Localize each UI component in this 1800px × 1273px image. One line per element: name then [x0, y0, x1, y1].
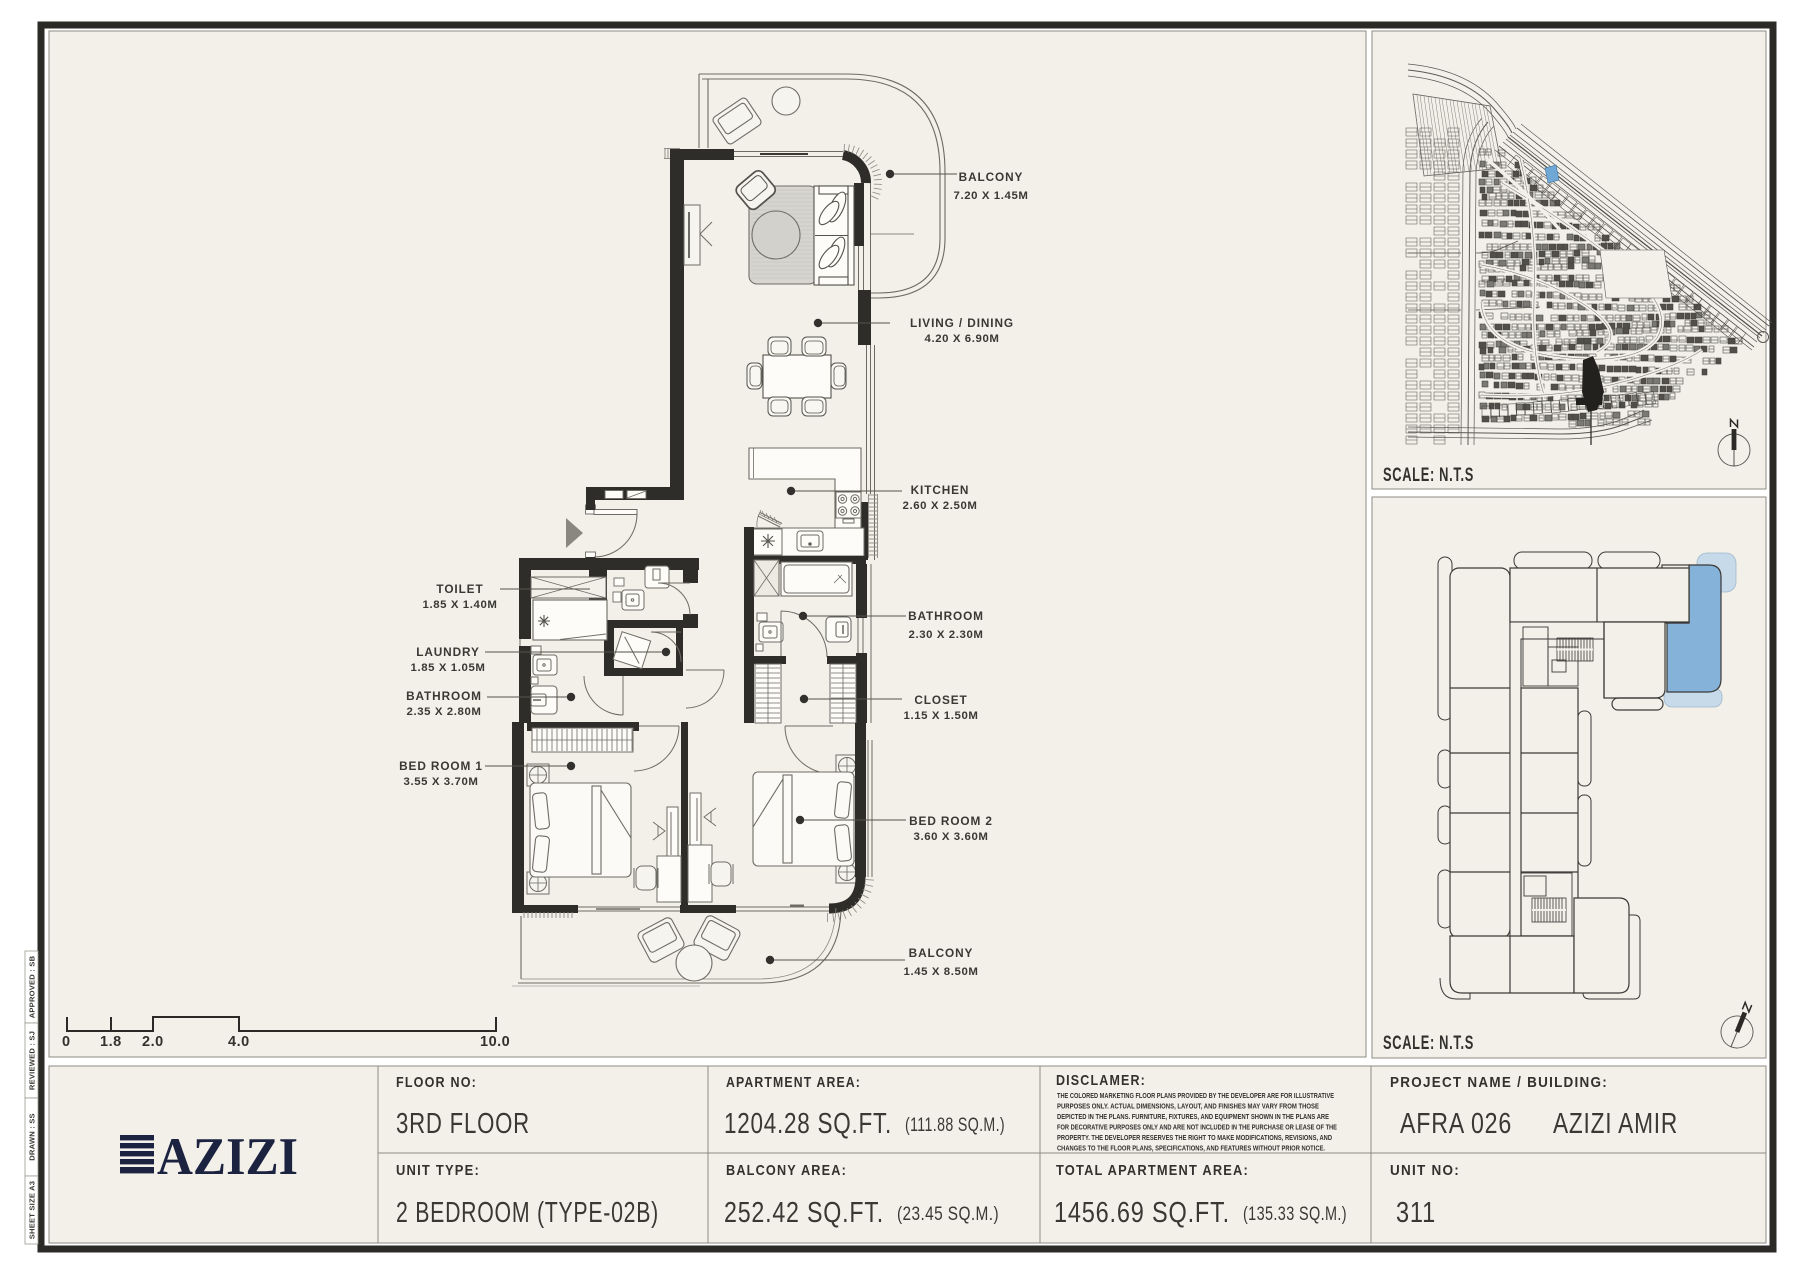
svg-text:SHEET SIZE A3: SHEET SIZE A3: [28, 1181, 37, 1239]
svg-text:(23.45 SQ.M.): (23.45 SQ.M.): [897, 1204, 999, 1225]
svg-text:CHANGES TO THE FLOOR PLANS, SP: CHANGES TO THE FLOOR PLANS, SPECIFICATIO…: [1057, 1144, 1325, 1153]
svg-text:(111.88 SQ.M.): (111.88 SQ.M.): [905, 1115, 1005, 1136]
svg-text:(135.33 SQ.M.): (135.33 SQ.M.): [1243, 1204, 1347, 1225]
svg-text:10.0: 10.0: [480, 1034, 510, 1050]
svg-text:AZIZI AMIR: AZIZI AMIR: [1553, 1108, 1678, 1140]
svg-text:1.15 X 1.50M: 1.15 X 1.50M: [904, 710, 979, 722]
svg-text:4.20 X 6.90M: 4.20 X 6.90M: [925, 333, 1000, 345]
svg-text:1.85 X 1.40M: 1.85 X 1.40M: [423, 599, 498, 611]
svg-text:TOTAL APARTMENT AREA:: TOTAL APARTMENT AREA:: [1056, 1162, 1249, 1179]
svg-text:DISCLAMER:: DISCLAMER:: [1056, 1072, 1146, 1089]
svg-text:2.30 X 2.30M: 2.30 X 2.30M: [909, 629, 984, 641]
svg-text:BATHROOM: BATHROOM: [908, 609, 984, 623]
svg-text:BATHROOM: BATHROOM: [406, 689, 482, 703]
svg-text:FOR DECORATIVE PURPOSES ONLY A: FOR DECORATIVE PURPOSES ONLY AND ARE NOT…: [1057, 1123, 1337, 1132]
svg-text:2.0: 2.0: [142, 1034, 164, 1050]
svg-text:CLOSET: CLOSET: [914, 693, 967, 707]
svg-text:THE COLORED MARKETING FLOOR PL: THE COLORED MARKETING FLOOR PLANS PROVID…: [1057, 1091, 1334, 1100]
svg-text:3RD FLOOR: 3RD FLOOR: [396, 1108, 530, 1140]
svg-text:AFRA 026: AFRA 026: [1400, 1108, 1512, 1140]
svg-text:UNIT NO:: UNIT NO:: [1390, 1162, 1460, 1179]
svg-text:FLOOR NO:: FLOOR NO:: [396, 1074, 477, 1091]
svg-text:2 BEDROOM (TYPE-02B): 2 BEDROOM (TYPE-02B): [396, 1197, 659, 1229]
svg-text:252.42 SQ.FT.: 252.42 SQ.FT.: [724, 1197, 884, 1229]
svg-text:DEPICTED IN THE PLANS. FURNITU: DEPICTED IN THE PLANS. FURNITURE, FIXTUR…: [1057, 1112, 1329, 1121]
svg-text:4.0: 4.0: [228, 1034, 250, 1050]
svg-text:2.35 X 2.80M: 2.35 X 2.80M: [407, 706, 482, 718]
svg-text:PURPOSES ONLY. ACTUAL DIMENSIO: PURPOSES ONLY. ACTUAL DIMENSIONS, LAYOUT…: [1057, 1102, 1319, 1111]
svg-text:TOILET: TOILET: [436, 582, 483, 596]
svg-text:APARTMENT AREA:: APARTMENT AREA:: [726, 1074, 861, 1091]
svg-text:311: 311: [1396, 1197, 1436, 1229]
svg-text:2.60 X 2.50M: 2.60 X 2.50M: [903, 500, 978, 512]
svg-text:BALCONY: BALCONY: [909, 946, 974, 960]
svg-text:3.55 X 3.70M: 3.55 X 3.70M: [404, 776, 479, 788]
svg-text:AZIZI: AZIZI: [157, 1128, 298, 1186]
svg-text:BED ROOM 1: BED ROOM 1: [399, 759, 483, 773]
svg-text:BED ROOM 2: BED ROOM 2: [909, 814, 993, 828]
svg-text:0: 0: [62, 1034, 71, 1050]
svg-text:APPROVED : SB: APPROVED : SB: [28, 955, 37, 1018]
svg-text:LIVING / DINING: LIVING / DINING: [910, 316, 1014, 330]
svg-text:3.60 X 3.60M: 3.60 X 3.60M: [914, 831, 989, 843]
svg-text:BALCONY AREA:: BALCONY AREA:: [726, 1162, 847, 1179]
svg-text:REVIEWED : SJ: REVIEWED : SJ: [28, 1031, 37, 1090]
svg-text:UNIT TYPE:: UNIT TYPE:: [396, 1162, 480, 1179]
svg-text:BALCONY: BALCONY: [959, 170, 1024, 184]
svg-text:LAUNDRY: LAUNDRY: [416, 645, 480, 659]
svg-text:DRAWN : SS: DRAWN : SS: [28, 1113, 37, 1161]
svg-text:PROJECT NAME / BUILDING:: PROJECT NAME / BUILDING:: [1390, 1074, 1608, 1091]
svg-text:1.85 X 1.05M: 1.85 X 1.05M: [411, 662, 486, 674]
svg-text:SCALE: N.T.S: SCALE: N.T.S: [1383, 1033, 1474, 1054]
svg-text:SCALE: N.T.S: SCALE: N.T.S: [1383, 465, 1474, 486]
svg-text:1.45 X 8.50M: 1.45 X 8.50M: [904, 966, 979, 978]
svg-text:7.20 X 1.45M: 7.20 X 1.45M: [954, 190, 1029, 202]
svg-text:1.8: 1.8: [100, 1034, 122, 1050]
svg-text:KITCHEN: KITCHEN: [911, 483, 970, 497]
svg-text:PROPERTY. THE DEVELOPER RESERV: PROPERTY. THE DEVELOPER RESERVES THE RIG…: [1057, 1133, 1332, 1142]
svg-text:1204.28 SQ.FT.: 1204.28 SQ.FT.: [724, 1108, 892, 1140]
svg-text:1456.69 SQ.FT.: 1456.69 SQ.FT.: [1054, 1197, 1230, 1229]
